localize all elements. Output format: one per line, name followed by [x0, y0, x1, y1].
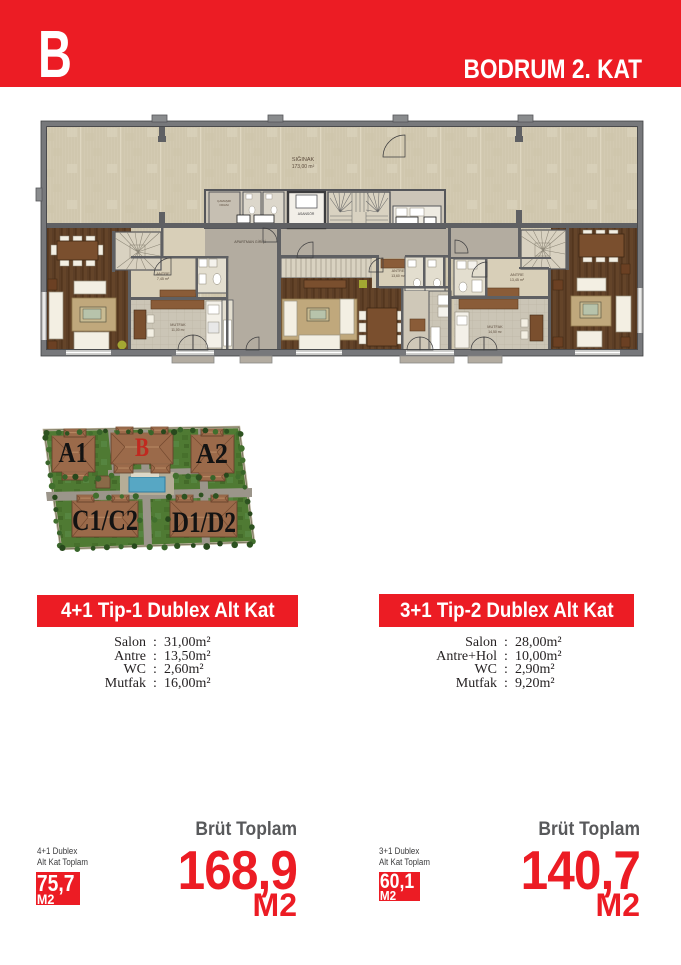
svg-text:14,50 m²: 14,50 m²	[488, 330, 502, 334]
svg-text:11,00 m²: 11,00 m²	[171, 328, 185, 332]
svg-text:APARTMAN GİRİŞİ: APARTMAN GİRİŞİ	[234, 239, 265, 244]
svg-text:B: B	[135, 433, 149, 462]
svg-text:7,45 m²: 7,45 m²	[157, 277, 170, 281]
svg-text:D1/D2: D1/D2	[172, 506, 236, 539]
svg-text:173,00 m²: 173,00 m²	[292, 164, 315, 170]
svg-text:13,60 m²: 13,60 m²	[391, 274, 405, 278]
svg-text:MUTFAK: MUTFAK	[170, 323, 186, 327]
svg-text:ASANSÖR: ASANSÖR	[298, 212, 315, 216]
svg-text:ODASI: ODASI	[219, 203, 229, 207]
svg-text:ANTRE: ANTRE	[392, 269, 405, 273]
svg-text:SIĞINAK: SIĞINAK	[292, 156, 315, 163]
svg-text:A2: A2	[196, 438, 228, 470]
svg-text:13,45 m²: 13,45 m²	[510, 278, 525, 282]
svg-text:MUTFAK: MUTFAK	[487, 325, 503, 329]
svg-text:A1: A1	[59, 437, 88, 469]
svg-text:ANTRE: ANTRE	[510, 272, 524, 277]
svg-text:C1/C2: C1/C2	[72, 504, 138, 537]
